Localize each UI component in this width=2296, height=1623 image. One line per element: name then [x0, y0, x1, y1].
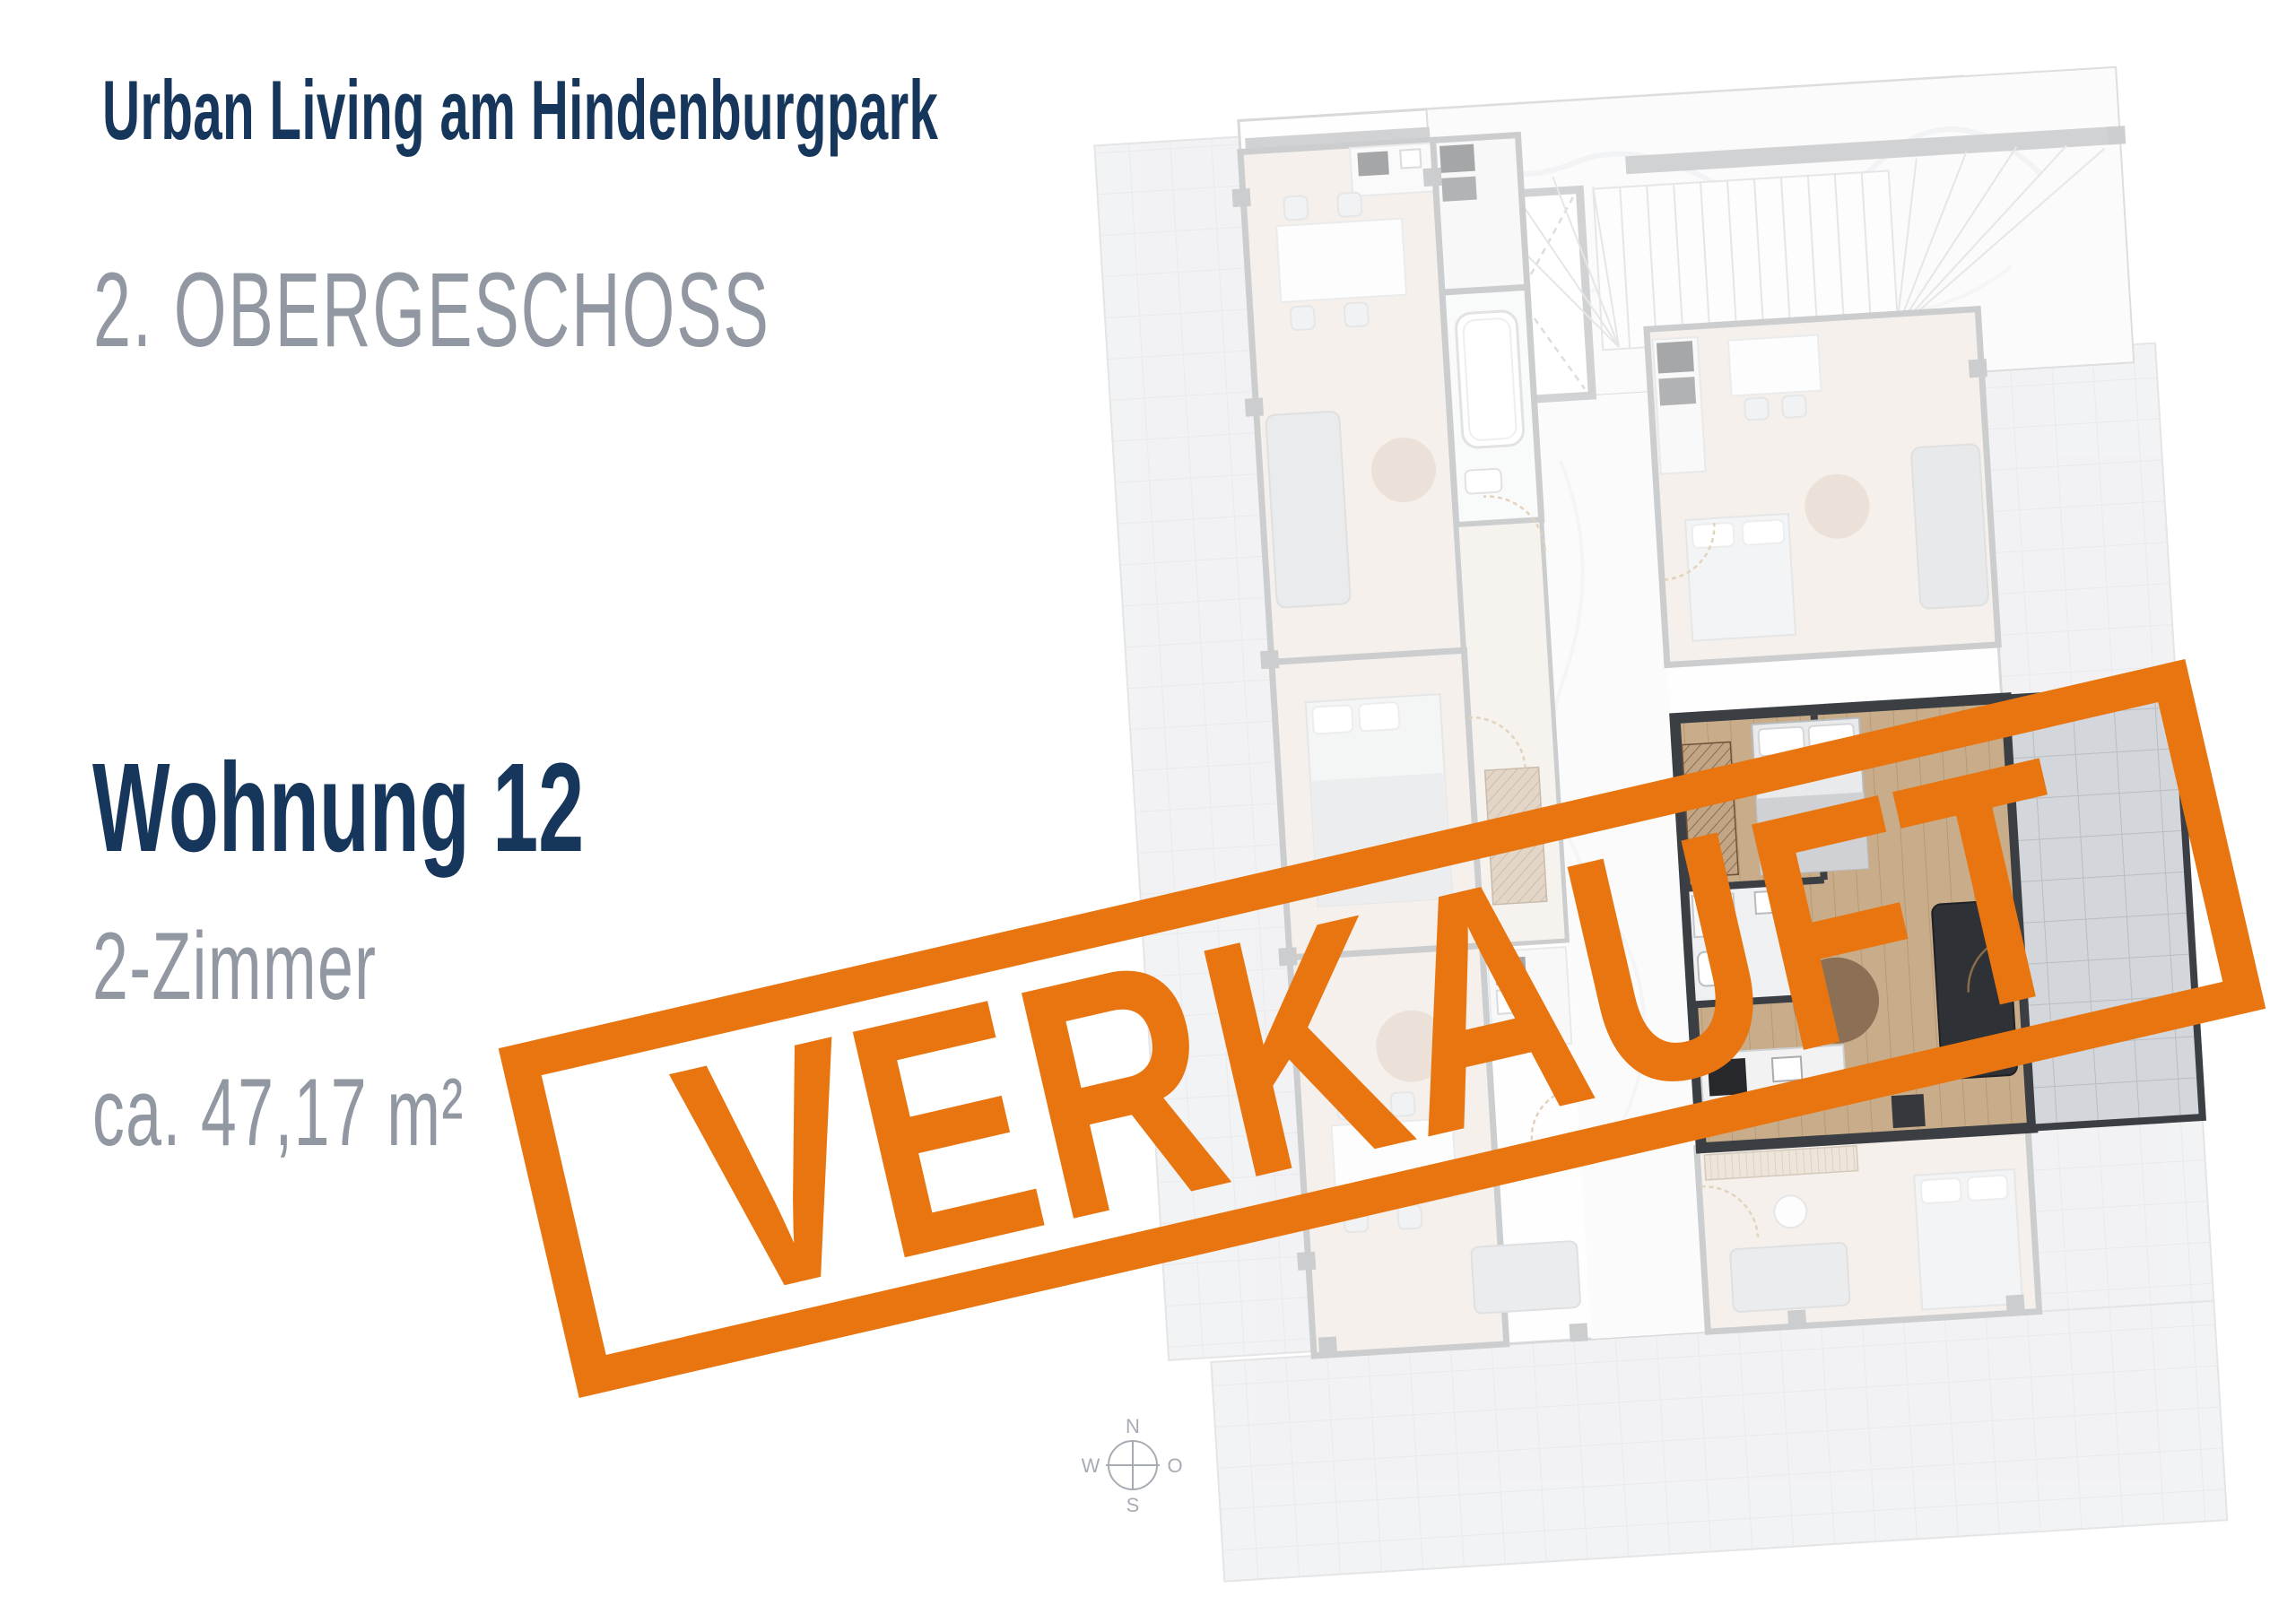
unit-area: ca. 47,17 m² — [92, 1064, 465, 1160]
sink — [1465, 468, 1502, 493]
compass-south-label: S — [1126, 1494, 1140, 1516]
coffee-table — [1773, 1194, 1807, 1228]
bed — [1914, 1169, 2022, 1310]
sofa — [1911, 444, 1989, 609]
sink — [1400, 149, 1421, 168]
unit-name: Wohnung 12 — [92, 744, 584, 871]
compass-west-label: W — [1082, 1454, 1100, 1477]
compass-icon: N O S W — [1061, 1393, 1205, 1537]
floor-title: 2. OBERGESCHOSS — [93, 257, 770, 363]
cooktop — [1657, 341, 1694, 373]
compass-east-label: O — [1167, 1454, 1182, 1477]
brochure-page: Urban Living am Hindenburgpark 2. OBERGE… — [0, 0, 2296, 1623]
sofa — [1730, 1243, 1850, 1313]
apartment-room — [1647, 309, 1998, 665]
sofa — [1471, 1241, 1580, 1314]
unit-rooms: 2-Zimmer — [92, 918, 377, 1014]
bed — [1685, 514, 1796, 641]
project-title: Urban Living am Hindenburgpark — [102, 68, 938, 152]
cooktop — [1357, 151, 1389, 176]
sofa — [1265, 411, 1351, 608]
apartment-room — [1697, 1128, 2039, 1332]
apartment-room — [1240, 140, 1464, 662]
compass-north-label: N — [1126, 1415, 1140, 1437]
